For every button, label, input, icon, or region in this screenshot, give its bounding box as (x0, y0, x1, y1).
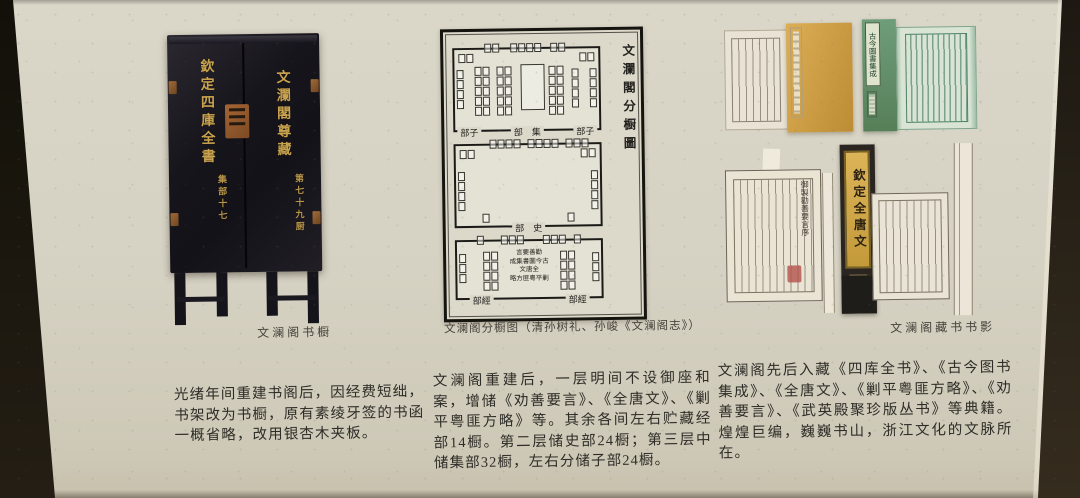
bookcase-cells (527, 139, 558, 148)
bookcase-cells (510, 43, 541, 52)
cabinet-right-door-subtitle: 第七十九厨 (293, 173, 307, 243)
book-open-page (724, 30, 788, 131)
book-yellow-cover (786, 23, 854, 133)
hinge-icon (311, 79, 319, 92)
room-jing-book-list: 言要善勸 成集書圖今古 文唐全 略方匪粵平剿 (510, 249, 549, 284)
bookcase-cells (460, 150, 475, 159)
shelf-diagram: 文瀾閣分橱圖 部子 部 集 部子 (440, 27, 647, 323)
bookcase-cells (548, 66, 564, 115)
paragraph-right: 文澜阁先后入藏《四库全书》、《古今图书集成》、《全唐文》、《剿平粤匪方略》、《劝… (718, 357, 1013, 464)
cabinet-door-split (242, 43, 247, 268)
diagram-center-void (520, 64, 545, 110)
spine-title-label: 欽定全唐文 (844, 150, 872, 268)
narrow-folded-page (954, 143, 973, 315)
bookcase-cells (456, 70, 464, 109)
bookcase-cells (543, 235, 566, 244)
cabinet-body: 欽定四庫全書 集部十七 文瀾閣尊藏 第七十九厨 (167, 33, 322, 273)
cabinet-left-door-subtitle: 集部十七 (216, 174, 230, 244)
bookcase-cells (477, 236, 484, 245)
room-label: 部經 (470, 295, 494, 307)
paragraph-left: 光绪年间重建书阁后，因经费短绌，书架改为书橱，原有素绫牙签的书函一概省略，改用银… (174, 382, 425, 447)
diagram-room-jing: 言要善勸 成集書圖今古 文唐全 略方匪粵平剿 部經 部經 (455, 238, 604, 300)
hinge-icon (170, 213, 178, 226)
bookcase-cells (550, 43, 565, 52)
bookcase-cells (484, 44, 499, 53)
bookcase-cells (483, 252, 499, 291)
caption-books: 文澜阁藏书书影 (890, 318, 995, 336)
bookcase-cells (496, 66, 512, 115)
book-open-page-right (871, 192, 949, 300)
bookcase-cells (592, 252, 599, 281)
book-green-cover: 古今圖書集成 (862, 19, 898, 131)
cabinet-stretcher (269, 295, 317, 301)
bookcase-cells (567, 213, 574, 222)
room-label: 部經 (566, 293, 590, 305)
cabinet-stretcher (177, 296, 225, 302)
bookcase-cells (560, 251, 576, 290)
exhibit-panel: 欽定四庫全書 集部十七 文瀾閣尊藏 第七十九厨 文澜阁书橱 文瀾閣 (0, 0, 1080, 498)
hinge-icon (312, 211, 320, 224)
hinge-icon (169, 81, 177, 94)
panel-content: 欽定四庫全書 集部十七 文瀾閣尊藏 第七十九厨 文澜阁书橱 文瀾閣 (0, 0, 1080, 498)
title-slip (790, 27, 803, 117)
bookcase-cells (589, 68, 597, 107)
page-edge-strip (822, 173, 835, 313)
paragraph-center: 文澜阁重建后，一层明间不设御座和案，增储《劝善要言》、《全唐文》、《剿平粤匪方略… (433, 368, 712, 474)
bookcase-cells (474, 67, 490, 116)
bookcase-cells (591, 170, 599, 209)
book-green-printed-page (896, 26, 977, 130)
cabinet-photo: 欽定四庫全書 集部十七 文瀾閣尊藏 第七十九厨 (167, 33, 323, 327)
room-label: 部子 (457, 127, 481, 139)
green-cover-title-slip: 古今圖書集成 (865, 22, 881, 86)
room-label: 部 史 (512, 222, 545, 234)
diagram-room-ji: 部子 部 集 部子 (452, 46, 601, 132)
bookcase-cells (565, 138, 588, 147)
diagram-title: 文瀾閣分橱圖 (618, 44, 639, 155)
room-label: 部 集 (511, 126, 544, 138)
bookcase-cells (581, 148, 596, 157)
lock-plate-icon (225, 104, 249, 138)
diagram-room-shi: 部 史 (454, 142, 603, 228)
room-label: 部子 (573, 125, 597, 137)
caption-diagram: 文澜阁分橱图（清孙树礼、孙峻《文澜阁志》） (444, 317, 701, 337)
bookcase-cells (571, 68, 579, 107)
bookcase-cells (458, 172, 466, 211)
bookcase-cells (459, 254, 466, 283)
bookcase-cells (501, 235, 524, 244)
cabinet-left-door-title: 欽定四庫全書 (195, 59, 217, 209)
bookcase-cells (483, 214, 490, 223)
seal-stamp-icon (787, 265, 801, 282)
cabinet-leg (216, 272, 228, 316)
bookcase-cells (489, 139, 520, 148)
book-preface-page: 御製勸善要言序 (725, 169, 823, 302)
cabinet-right-door-title: 文瀾閣尊藏 (271, 69, 293, 199)
caption-cabinet: 文澜阁书橱 (257, 323, 332, 341)
bookcase-cells (579, 52, 594, 61)
green-cover-small-slip (867, 91, 877, 117)
bookcase-cells (458, 54, 473, 63)
bookcase-cells (574, 234, 581, 243)
cabinet-leg (266, 272, 278, 316)
